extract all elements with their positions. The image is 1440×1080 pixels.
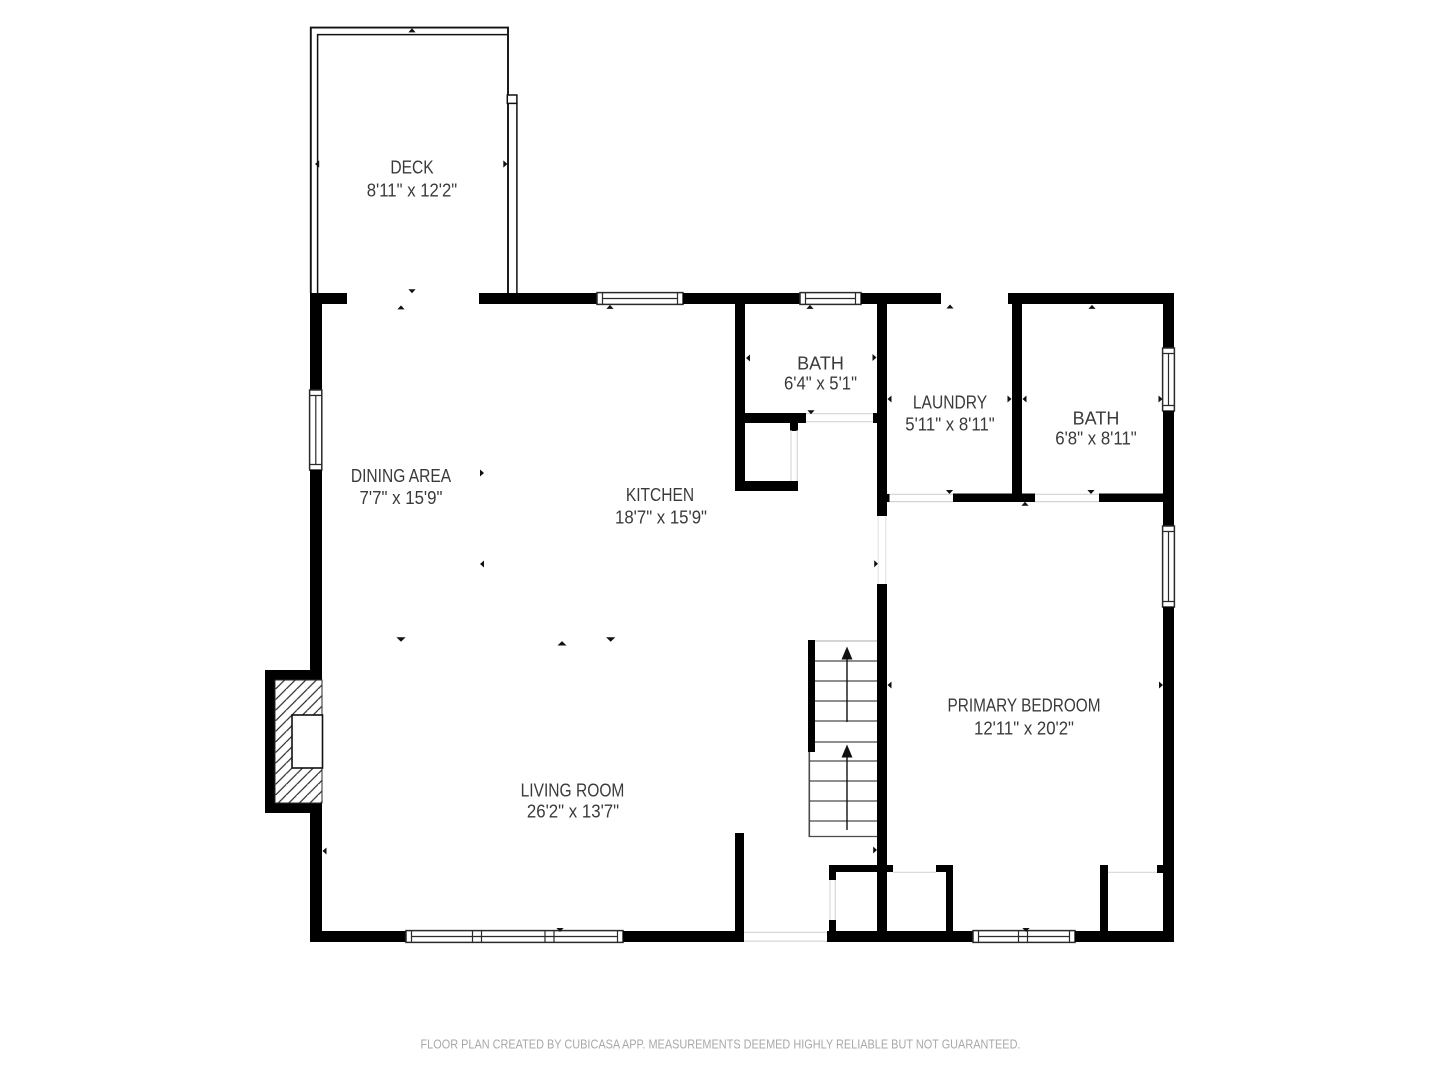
svg-text:BATH: BATH	[1073, 409, 1120, 429]
svg-text:DINING AREA: DINING AREA	[351, 466, 451, 486]
svg-text:26'2" x 13'7": 26'2" x 13'7"	[527, 802, 619, 822]
svg-text:PRIMARY BEDROOM: PRIMARY BEDROOM	[948, 696, 1101, 716]
svg-text:FLOOR PLAN CREATED BY CUBICASA: FLOOR PLAN CREATED BY CUBICASA APP. MEAS…	[421, 1037, 1021, 1052]
svg-text:6'4" x 5'1": 6'4" x 5'1"	[784, 374, 857, 394]
svg-text:7'7" x 15'9": 7'7" x 15'9"	[360, 488, 443, 508]
svg-text:5'11" x 8'11": 5'11" x 8'11"	[905, 415, 995, 435]
svg-text:LAUNDRY: LAUNDRY	[913, 393, 987, 413]
svg-text:18'7" x 15'9": 18'7" x 15'9"	[615, 508, 707, 528]
svg-text:DECK: DECK	[390, 158, 433, 178]
svg-text:LIVING ROOM: LIVING ROOM	[521, 781, 625, 801]
svg-text:12'11" x 20'2": 12'11" x 20'2"	[974, 719, 1074, 739]
svg-text:8'11" x 12'2": 8'11" x 12'2"	[367, 181, 458, 201]
svg-text:KITCHEN: KITCHEN	[626, 485, 694, 505]
svg-text:BATH: BATH	[797, 354, 844, 374]
svg-text:6'8" x 8'11": 6'8" x 8'11"	[1055, 429, 1137, 449]
